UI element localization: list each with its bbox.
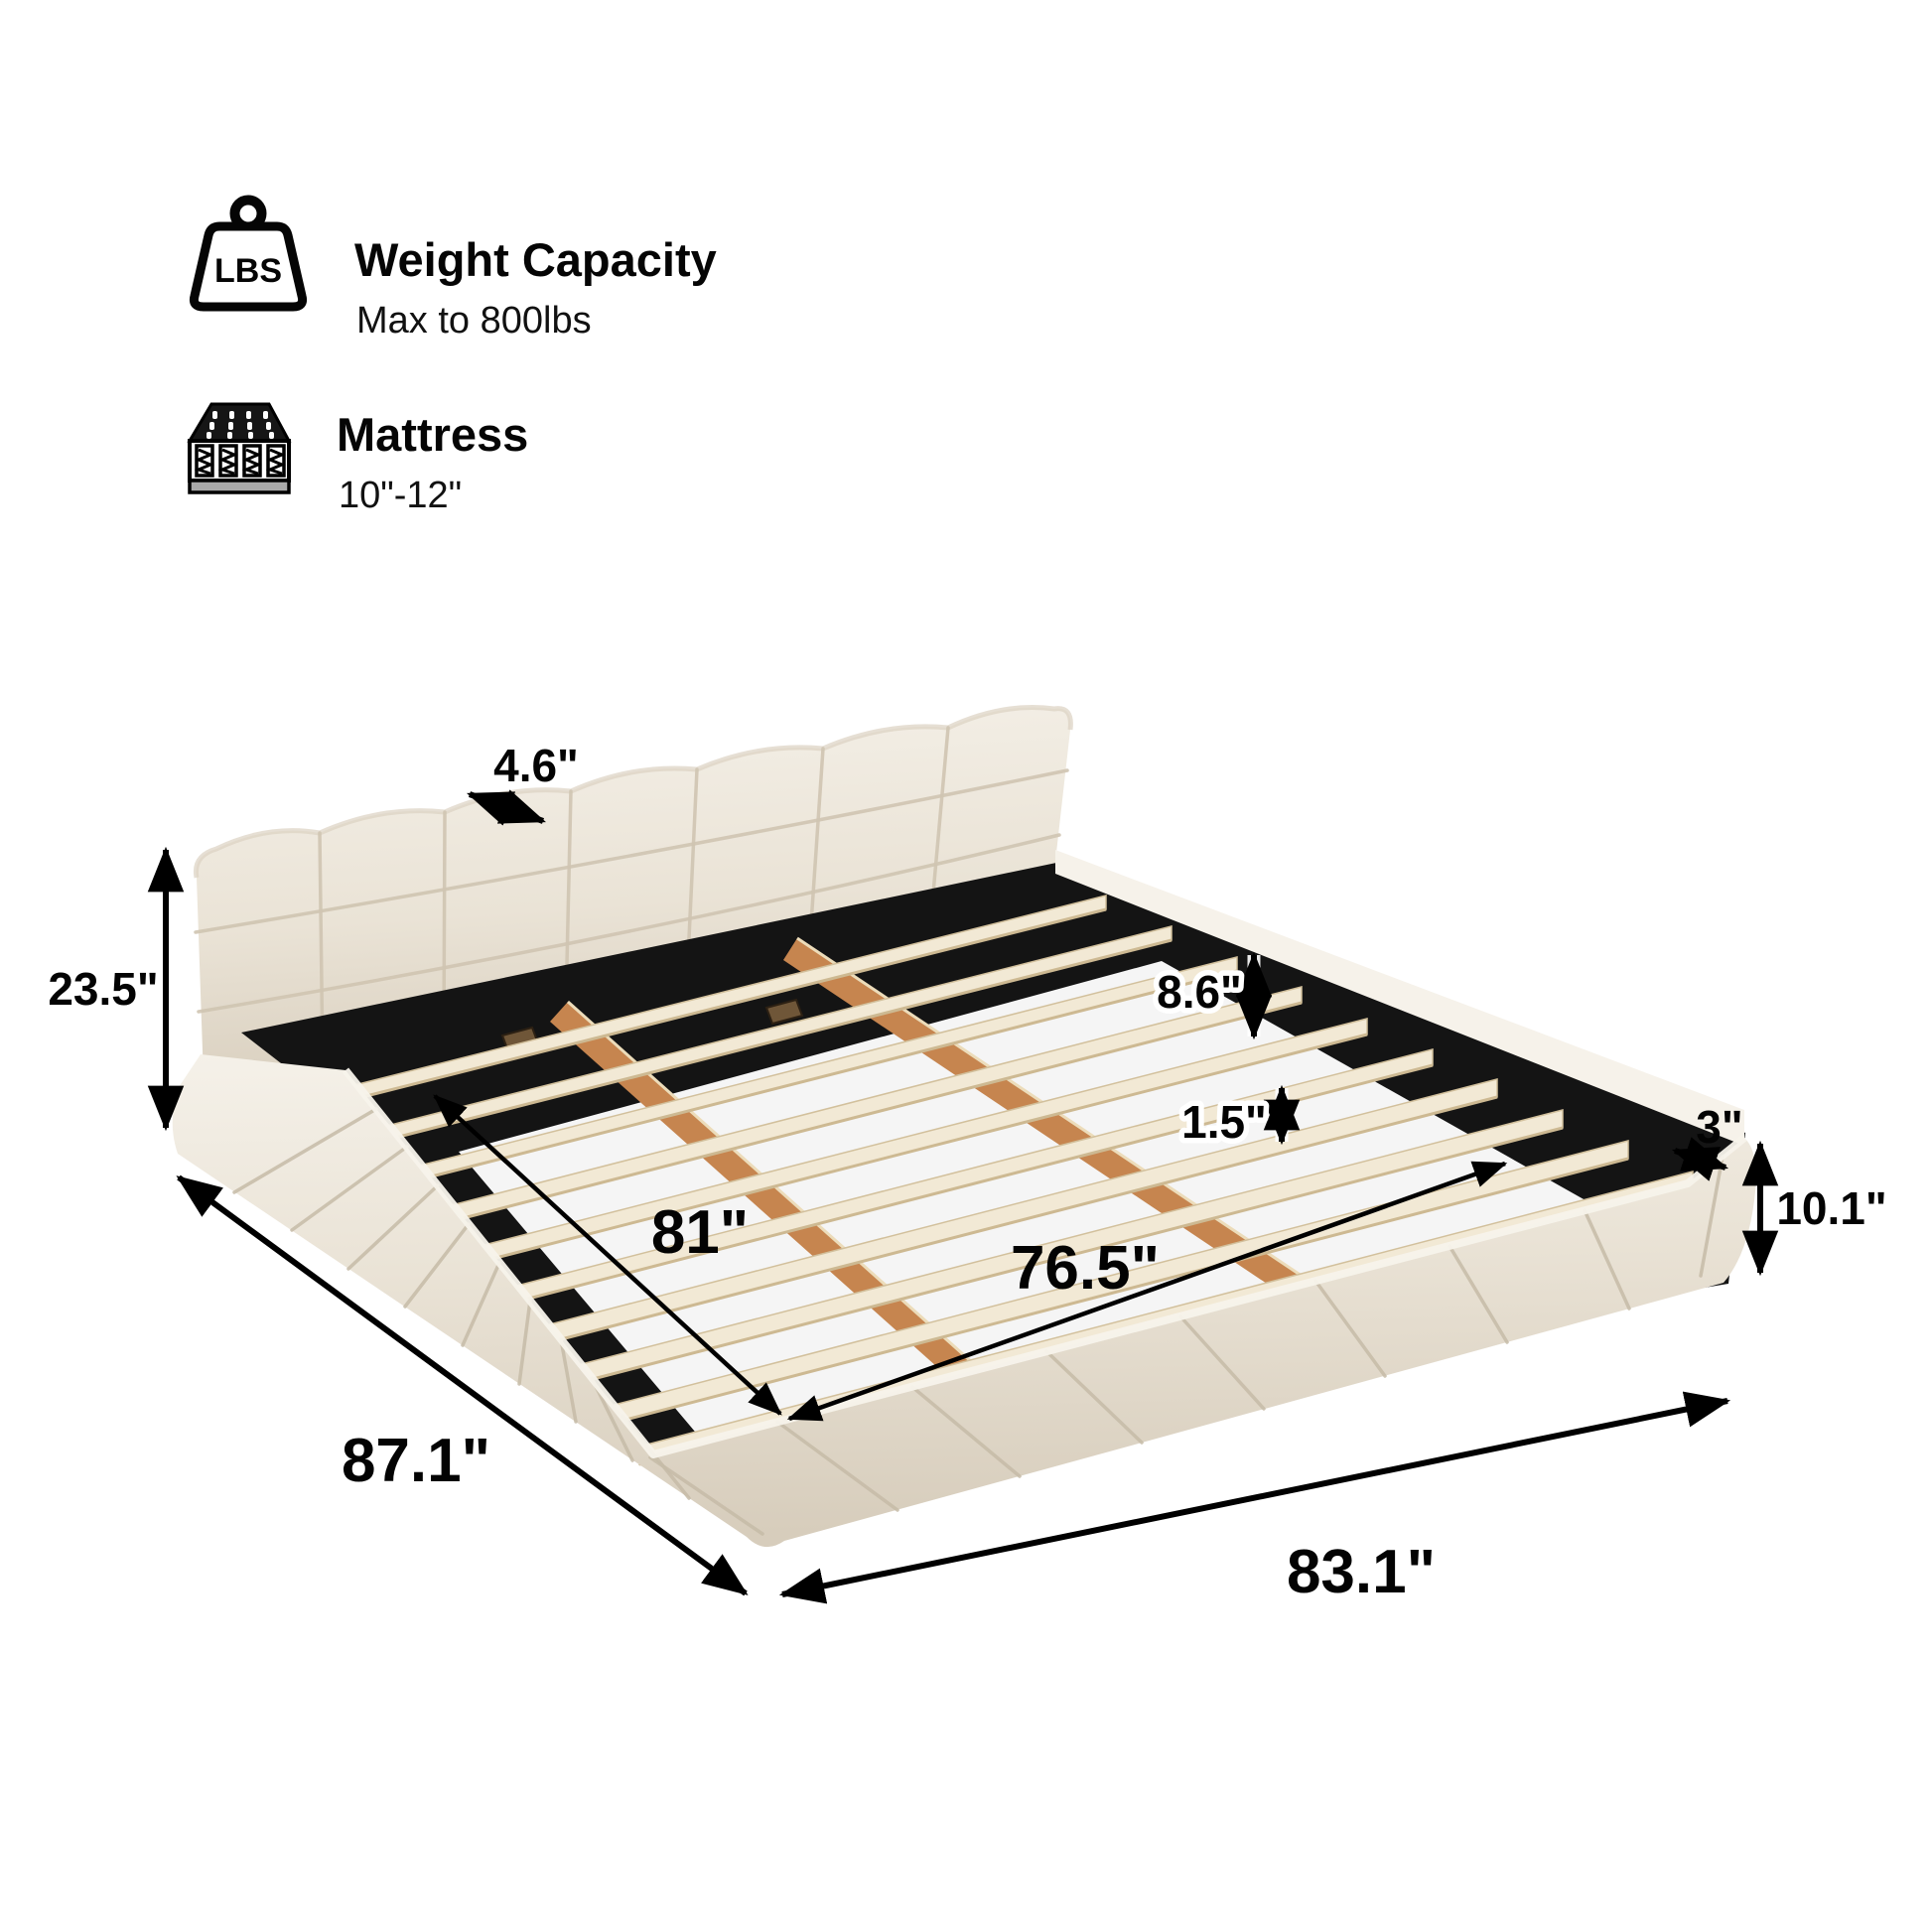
product-dimension-diagram: LBS Weight Capacity Max to 800lbs	[0, 0, 1932, 1932]
dim-base-height: 10.1"	[1760, 1144, 1887, 1273]
dim-label-frame-inner-height: 8.6"	[1157, 966, 1242, 1018]
dim-label-overall-length: 87.1"	[342, 1427, 490, 1495]
dim-label-slat-thickness: 1.5"	[1181, 1096, 1267, 1148]
dim-label-headboard-height: 23.5"	[48, 963, 158, 1015]
dim-headboard-height: 23.5"	[48, 850, 166, 1128]
dim-label-rail-top-width: 3"	[1696, 1101, 1742, 1153]
dim-label-slat-platform-length: 81"	[651, 1198, 749, 1267]
dim-label-overall-width: 83.1"	[1287, 1538, 1436, 1606]
dim-label-slat-platform-width: 76.5"	[1011, 1234, 1160, 1303]
dim-label-headboard-thickness: 4.6"	[493, 740, 579, 791]
bed-illustration: 23.5" 4.6" 8.6" 1.5" 3"	[0, 0, 1932, 1932]
dim-label-base-height: 10.1"	[1776, 1182, 1886, 1234]
dim-slat-thickness: 1.5"	[1181, 1088, 1282, 1148]
